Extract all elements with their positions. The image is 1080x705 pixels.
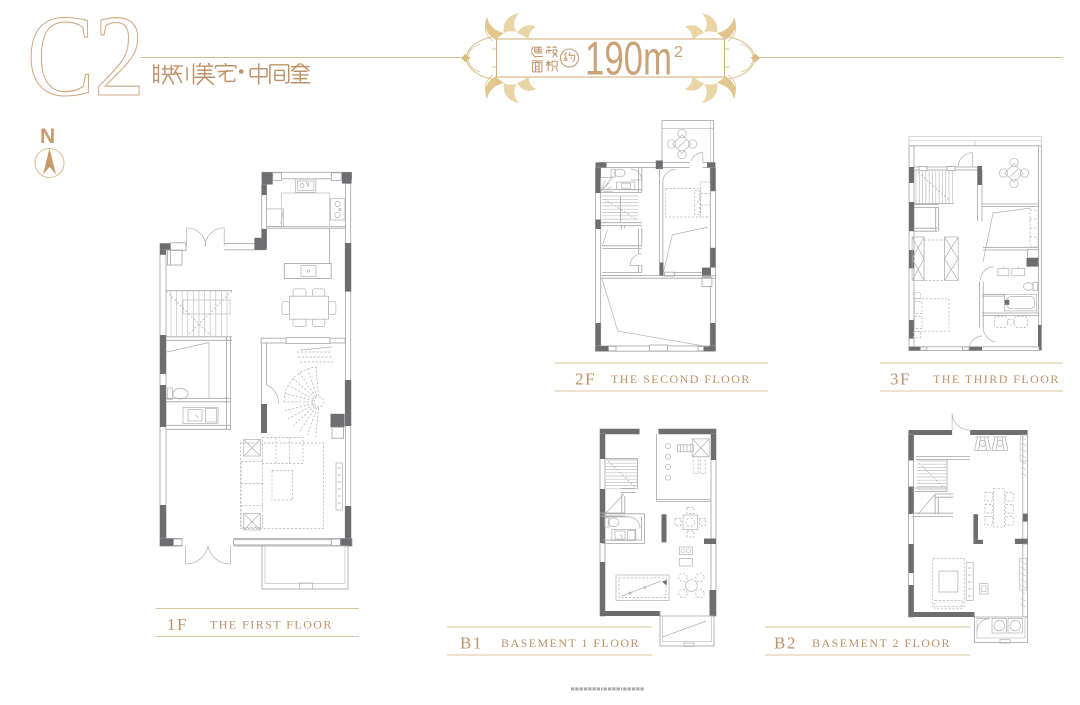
svg-text:THE THIRD FLOOR: THE THIRD FLOOR <box>933 372 1060 386</box>
svg-text:BASEMENT 1 FLOOR: BASEMENT 1 FLOOR <box>501 636 640 650</box>
svg-text:190m: 190m <box>585 32 672 85</box>
svg-text:BASEMENT 2 FLOOR: BASEMENT 2 FLOOR <box>812 636 951 650</box>
svg-text:2: 2 <box>674 44 683 61</box>
svg-text:2F: 2F <box>575 370 596 389</box>
svg-text:THE FIRST FLOOR: THE FIRST FLOOR <box>210 618 333 632</box>
svg-text:N: N <box>40 125 55 148</box>
svg-text:C2: C2 <box>27 0 145 121</box>
svg-text:3F: 3F <box>890 370 911 389</box>
svg-text:B2: B2 <box>774 634 797 653</box>
svg-text:1F: 1F <box>167 615 188 634</box>
svg-text:THE SECOND FLOOR: THE SECOND FLOOR <box>611 372 751 386</box>
svg-text:B1: B1 <box>460 634 483 653</box>
